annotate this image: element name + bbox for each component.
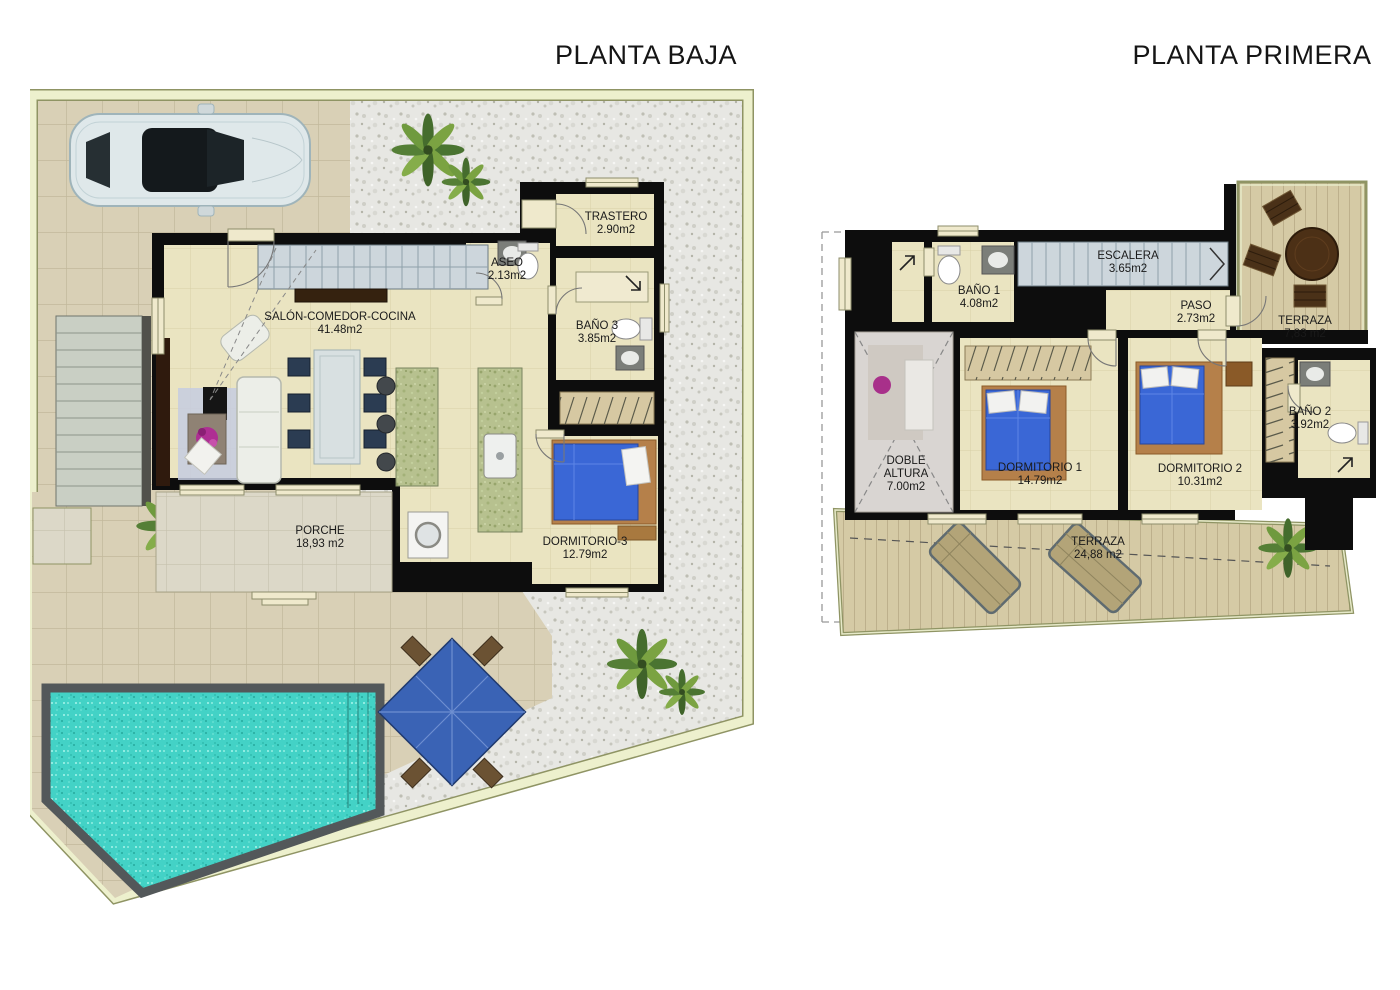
room-name: DORMITORIO 1	[998, 462, 1082, 475]
room-label-bano1: BAÑO 1 4.08m2	[958, 285, 1000, 311]
round-table	[1286, 228, 1338, 280]
room-label-dormitorio1: DORMITORIO 1 14.79m2	[998, 462, 1082, 488]
room-label-escalera: ESCALERA 3.65m2	[1097, 250, 1158, 276]
kitchen-island	[396, 368, 438, 486]
room-name-line2: ALTURA	[884, 468, 929, 481]
terrace-chair	[1294, 285, 1326, 307]
room-name: DOBLE	[884, 455, 929, 468]
fireplace	[295, 289, 387, 302]
exterior-steps	[56, 316, 151, 506]
room-label-aseo: ASEO 2.13m2	[488, 257, 526, 283]
room-name: SALÓN-COMEDOR-COCINA	[264, 311, 415, 324]
room-label-bano3: BAÑO 3 3.85m2	[576, 320, 618, 346]
entry-landing	[33, 508, 91, 564]
room-area: 3.65m2	[1097, 263, 1158, 276]
room-name: TRASTERO	[585, 211, 648, 224]
lower-terrace	[835, 510, 1352, 634]
room-area: 14.79m2	[998, 475, 1082, 488]
room-area: 10.31m2	[1158, 476, 1242, 489]
room-name: DORMITORIO-3	[543, 536, 628, 549]
floor-plan-page: { "page": {"background": "#ffffff"}, "co…	[0, 0, 1400, 990]
room-area: 24,88 m2	[1071, 549, 1125, 562]
ground-floor-title: PLANTA BAJA	[555, 40, 737, 71]
first-floor-title: PLANTA PRIMERA	[1132, 40, 1371, 71]
closet	[560, 392, 654, 424]
interior-stairs	[258, 245, 488, 289]
room-area: 41.48m2	[264, 324, 415, 337]
room-label-doble-altura: DOBLE ALTURA 7.00m2	[884, 455, 929, 494]
room-area: 4.08m2	[958, 298, 1000, 311]
room-label-salon-comedor-cocina: SALÓN-COMEDOR-COCINA 41.48m2	[264, 311, 415, 337]
room-label-trastero: TRASTERO 2.90m2	[585, 211, 648, 237]
room-label-terraza-inferior: TERRAZA 24,88 m2	[1071, 536, 1125, 562]
room-name: PASO	[1177, 300, 1215, 313]
room-label-terraza-superior: TERRAZA 7,83 m2	[1278, 315, 1332, 341]
room-name: TERRAZA	[1278, 315, 1332, 328]
room-area: 3.92m2	[1289, 419, 1331, 432]
room-name: DORMITORIO 2	[1158, 463, 1242, 476]
room-name: ESCALERA	[1097, 250, 1158, 263]
room-name: BAÑO 2	[1289, 406, 1331, 419]
room-area: 18,93 m2	[295, 538, 344, 551]
room-label-paso: PASO 2.73m2	[1177, 300, 1215, 326]
ground-floor-drawing	[30, 88, 770, 918]
first-floor-drawing	[810, 170, 1380, 640]
room-name: BAÑO 1	[958, 285, 1000, 298]
room-name: PORCHE	[295, 525, 344, 538]
room-area: 7.00m2	[884, 481, 929, 494]
room-area: 3.85m2	[576, 333, 618, 346]
room-label-dormitorio2: DORMITORIO 2 10.31m2	[1158, 463, 1242, 489]
sofa	[237, 377, 281, 483]
room-area: 2.13m2	[488, 270, 526, 283]
room-label-bano2: BAÑO 2 3.92m2	[1289, 406, 1331, 432]
room-name: TERRAZA	[1071, 536, 1125, 549]
room-area: 2.73m2	[1177, 313, 1215, 326]
room-area: 12.79m2	[543, 549, 628, 562]
dining-set	[288, 350, 386, 464]
room-label-dormitorio3: DORMITORIO-3 12.79m2	[543, 536, 628, 562]
room-name: BAÑO 3	[576, 320, 618, 333]
room-label-porche: PORCHE 18,93 m2	[295, 525, 344, 551]
room-area: 7,83 m2	[1278, 328, 1332, 341]
tv-cabinet	[156, 338, 170, 486]
car	[70, 104, 310, 216]
nightstand	[1226, 362, 1252, 386]
wardrobe	[965, 346, 1091, 380]
room-area: 2.90m2	[585, 224, 648, 237]
room-name: ASEO	[488, 257, 526, 270]
